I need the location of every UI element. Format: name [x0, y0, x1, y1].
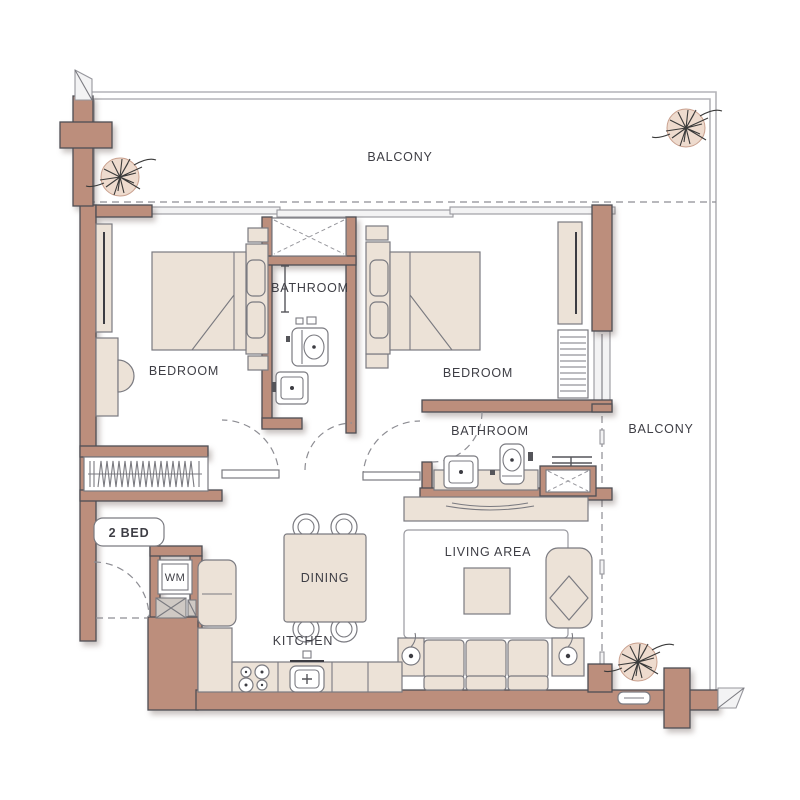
pillow [247, 302, 265, 338]
sink-drain [290, 386, 294, 390]
sofa-back-cushion [466, 676, 506, 690]
sofa-seat [424, 640, 464, 678]
faucet [303, 651, 311, 658]
sofa-seat [466, 640, 506, 678]
wall-shower-ledge [262, 256, 356, 265]
closet-louvered [558, 330, 588, 398]
burner-dot [261, 684, 263, 686]
fridge [198, 560, 236, 626]
bedroom-left-furniture [96, 224, 268, 416]
toilet-drain [312, 345, 316, 349]
pillow [370, 302, 388, 338]
label-balcony-top: BALCONY [367, 150, 432, 164]
wall-bath-core-bottom [262, 418, 302, 429]
sofa-seat [508, 640, 548, 678]
stool [118, 360, 134, 392]
bathroom-top-fixtures [272, 218, 352, 470]
wall-above-closet [80, 446, 208, 457]
toilet [292, 328, 328, 366]
dresser [96, 338, 118, 416]
nightstand [366, 354, 388, 368]
column-top-left-stem [73, 96, 93, 206]
label-bathroom-top: BATHROOM [271, 281, 349, 295]
column-top-left-arm [60, 122, 112, 148]
label-balcony-right: BALCONY [628, 422, 693, 436]
nightstand [366, 226, 388, 240]
label-kitchen: KITCHEN [273, 634, 333, 648]
plant-icon [86, 158, 156, 196]
burner-dot [245, 684, 248, 687]
wall-left [80, 205, 96, 641]
label-washing-machine: WM [165, 572, 186, 584]
glazing-panel [450, 207, 615, 214]
toilet-drain [510, 458, 514, 462]
lamp-bulb [409, 654, 413, 658]
pillow [370, 260, 388, 296]
flush-control [286, 336, 290, 342]
lamp-bulb [566, 654, 570, 658]
label-bedroom-right: BEDROOM [443, 366, 513, 380]
wall-bath-core-right [346, 217, 356, 433]
wall-bathroom2-left [422, 462, 432, 490]
wall-wm-niche-top [150, 546, 202, 556]
door-swing-arc [363, 421, 420, 478]
nightstand [248, 356, 268, 370]
wall-right-upper [592, 205, 612, 331]
accessory [296, 318, 303, 324]
pillow [247, 260, 265, 296]
coffee-table [464, 568, 510, 614]
wall-bedroom2-bottom [422, 400, 612, 412]
bed-mattress [390, 252, 480, 350]
bed-mattress [152, 252, 246, 350]
wall-right-stub [592, 404, 612, 412]
sliding-door-tick [600, 430, 604, 444]
door-leaf [222, 470, 279, 478]
plant-icon [652, 109, 722, 147]
wall-kitchen-left-block [148, 617, 198, 710]
door-leaf [363, 472, 420, 480]
burner-dot [261, 671, 264, 674]
floor-plan: BALCONY BALCONY BATHROOM BEDROOM BEDROOM… [0, 0, 800, 800]
sliding-door-tick [600, 560, 604, 574]
sink-drain [459, 470, 463, 474]
tv-unit [558, 222, 582, 324]
label-bathroom-mid: BATHROOM [451, 424, 529, 438]
wall-below-closet [80, 490, 222, 501]
wall-top-left [96, 205, 152, 217]
entry-door-swing-arc [94, 562, 149, 617]
label-bedroom-left: BEDROOM [149, 364, 219, 378]
glazing-panel [150, 207, 280, 214]
column-bottom-right-stem [664, 668, 690, 728]
sofa-back-cushion [424, 676, 464, 690]
counter-left [198, 628, 232, 692]
walls [60, 96, 718, 728]
sofa-back-cushion [508, 676, 548, 690]
label-dining: DINING [301, 571, 350, 585]
living-area-furniture [398, 497, 592, 690]
door-swing-arc [305, 423, 352, 470]
nightstand [248, 228, 268, 242]
floor-plan-page: BALCONY BALCONY BATHROOM BEDROOM BEDROOM… [0, 0, 800, 800]
burner-dot [245, 671, 247, 673]
entry [94, 562, 149, 618]
label-living-area: LIVING AREA [445, 545, 532, 559]
flush-control [528, 452, 533, 461]
label-unit-type-badge: 2 BED [109, 526, 150, 540]
wall-bottom-step [588, 664, 612, 692]
glazing-panel [277, 210, 453, 217]
accessory [307, 317, 316, 324]
tv-console [404, 497, 588, 521]
sink-tap [272, 382, 276, 392]
accessory [490, 470, 495, 475]
